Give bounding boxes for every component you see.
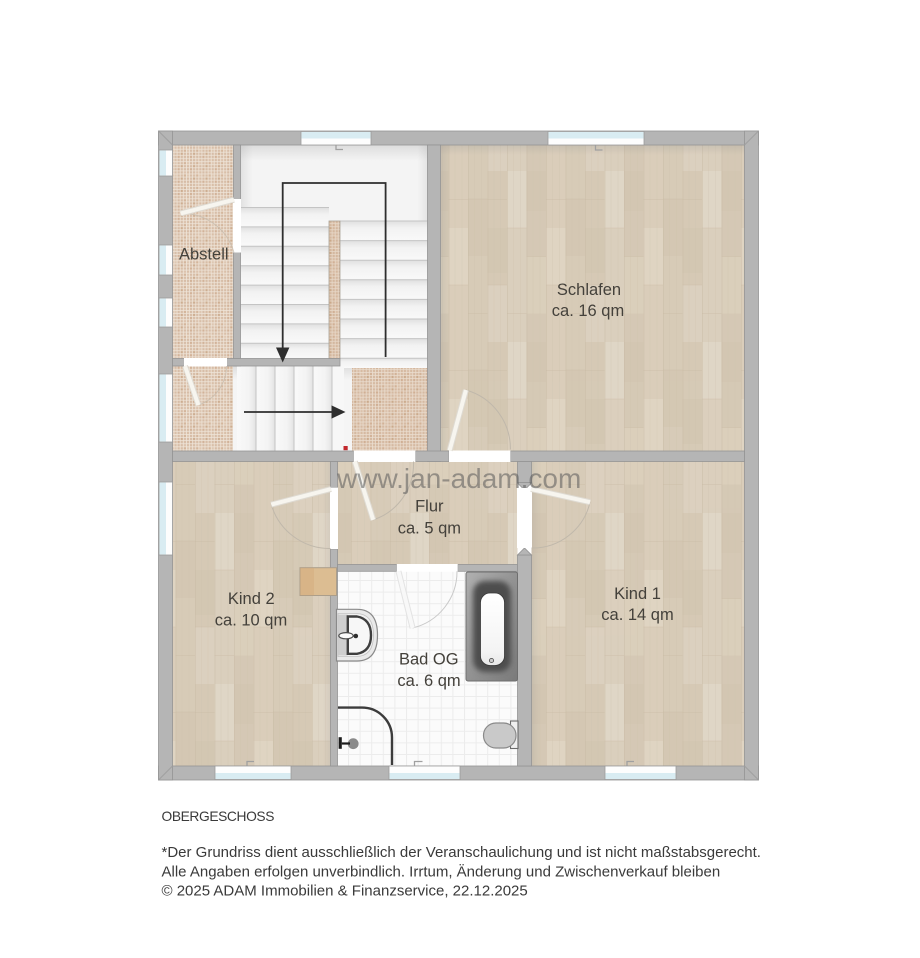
svg-text:*Der Grundriss dient ausschlie: *Der Grundriss dient ausschließlich der … xyxy=(162,844,761,861)
svg-text:© 2025 ADAM Immobilien & Finan: © 2025 ADAM Immobilien & Finanzservice, … xyxy=(162,883,528,900)
svg-text:www.jan-adam.com: www.jan-adam.com xyxy=(336,463,581,494)
svg-text:ca. 5 qm: ca. 5 qm xyxy=(398,520,461,538)
svg-text:Alle Angaben erfolgen unverbin: Alle Angaben erfolgen unverbindlich. Irr… xyxy=(162,864,721,881)
svg-text:Bad OG: Bad OG xyxy=(399,651,459,669)
svg-text:OBERGESCHOSS: OBERGESCHOSS xyxy=(162,809,275,824)
svg-text:ca. 16 qm: ca. 16 qm xyxy=(552,302,624,320)
svg-text:ca. 6 qm: ca. 6 qm xyxy=(397,672,460,690)
svg-text:ca. 10 qm: ca. 10 qm xyxy=(215,612,287,630)
svg-text:Kind 1: Kind 1 xyxy=(614,585,661,603)
svg-text:Abstell: Abstell xyxy=(179,245,229,263)
svg-text:Schlafen: Schlafen xyxy=(557,281,621,299)
svg-text:Kind 2: Kind 2 xyxy=(228,590,275,608)
svg-text:ca. 14 qm: ca. 14 qm xyxy=(601,606,673,624)
svg-text:Flur: Flur xyxy=(415,498,444,516)
